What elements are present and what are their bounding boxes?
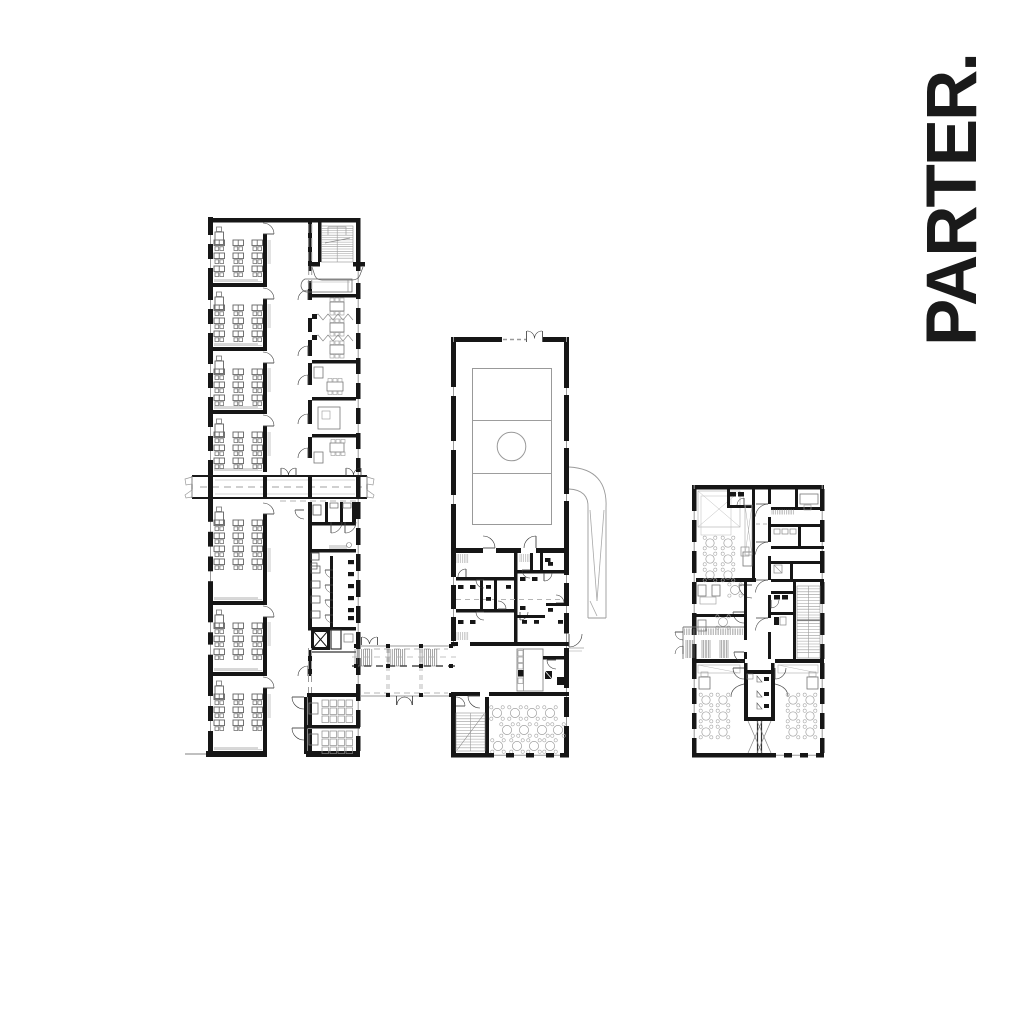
svg-text:PARTER.: PARTER. <box>913 52 992 346</box>
